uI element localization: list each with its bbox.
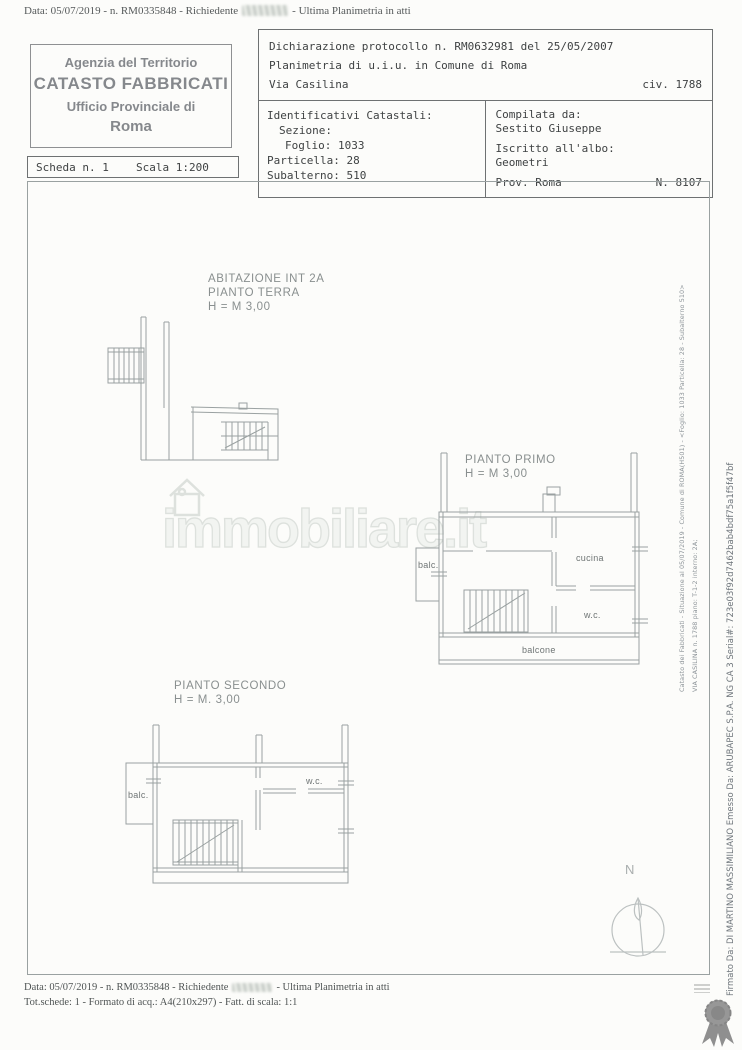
secondo-room-wc: w.c. <box>306 776 323 786</box>
agency-name: Agenzia del Territorio <box>31 55 231 70</box>
plan-canvas: immobiliare.it <box>27 181 710 975</box>
corner-scan-marks <box>694 984 710 993</box>
declaration-table: Dichiarazione protocollo n. RM0632981 de… <box>258 29 713 198</box>
albo-label: Iscritto all'albo: <box>496 142 703 156</box>
civic-number: civ. 1788 <box>642 75 702 94</box>
sezione-line: Sezione: <box>267 123 477 138</box>
scan-header-suffix: - Ultima Planimetria in atti <box>292 5 411 17</box>
floorplans-drawing <box>28 182 709 974</box>
identifiers-title: Identificativi Catastali: <box>267 108 477 123</box>
foglio-line: Foglio: 1033 <box>267 138 477 153</box>
office-line: Ufficio Provinciale di <box>31 99 231 114</box>
declaration-section: Dichiarazione protocollo n. RM0632981 de… <box>259 30 712 100</box>
particella-line: Particella: 28 <box>267 153 477 168</box>
albo-value: Geometri <box>496 156 703 170</box>
terra-height: H = M 3,00 <box>208 300 325 314</box>
side-signature-text: Firmato Da: DI MARTINO MASSIMILIANO Emes… <box>726 404 736 996</box>
compiler-name: Sestito Giuseppe <box>496 122 703 136</box>
protocol-line: Dichiarazione protocollo n. RM0632981 de… <box>269 37 702 56</box>
terra-title-block: ABITAZIONE INT 2A PIANTO TERRA H = M 3,0… <box>208 272 325 314</box>
footer-redacted-stamp <box>232 983 272 992</box>
street-name: Via Casilina <box>269 75 348 94</box>
redacted-requester-stamp <box>242 5 288 16</box>
scheda-number: Scheda n. 1 <box>28 161 136 174</box>
plan-secondo-geometry <box>126 725 354 883</box>
office-city: Roma <box>31 118 231 135</box>
agency-header-box: Agenzia del Territorio CATASTO FABBRICAT… <box>30 44 232 148</box>
certification-ribbon-icon <box>698 998 738 1048</box>
north-label: N <box>625 862 634 877</box>
secondo-title-block: PIANTO SECONDO H = M. 3,00 <box>174 679 286 707</box>
scheda-box: Scheda n. 1 Scala 1:200 <box>27 156 239 178</box>
north-compass: N <box>598 862 678 977</box>
primo-title-block: PIANTO PRIMO H = M 3,00 <box>465 453 556 481</box>
planimetria-line: Planimetria di u.i.u. in Comune di Roma <box>269 56 702 75</box>
footer-line1: Data: 05/07/2019 - n. RM0335848 - Richie… <box>24 982 390 993</box>
primo-height: H = M 3,00 <box>465 467 556 481</box>
secondo-room-balc: balc. <box>128 790 149 800</box>
primo-room-cucina: cucina <box>576 553 604 563</box>
compass-icon <box>598 862 678 977</box>
compiler-label: Compilata da: <box>496 108 703 122</box>
cadastral-floorplan-document: { "document": { "top_line": { "prefix": … <box>0 0 742 1050</box>
footer-line1-prefix: Data: 05/07/2019 - n. RM0335848 - Richie… <box>24 982 228 993</box>
terra-title-line2: PIANTO TERRA <box>208 286 325 300</box>
footer-line1-suffix: - Ultima Planimetria in atti <box>276 982 389 993</box>
terra-title-line1: ABITAZIONE INT 2A <box>208 272 325 286</box>
primo-room-wc: w.c. <box>584 610 601 620</box>
plan-terra-geometry <box>108 317 278 460</box>
scala-value: Scala 1:200 <box>136 161 209 174</box>
secondo-title-line1: PIANTO SECONDO <box>174 679 286 693</box>
primo-room-balc: balc. <box>418 560 439 570</box>
footer-line2: Tot.schede: 1 - Formato di acq.: A4(210x… <box>24 997 297 1008</box>
scan-header-prefix: Data: 05/07/2019 - n. RM0335848 - Richie… <box>24 5 238 17</box>
secondo-height: H = M. 3,00 <box>174 693 286 707</box>
plan-primo-geometry <box>416 453 648 664</box>
scan-header-line: Data: 05/07/2019 - n. RM0335848 - Richie… <box>24 5 724 17</box>
primo-title-line1: PIANTO PRIMO <box>465 453 556 467</box>
catasto-title: CATASTO FABBRICATI <box>31 74 231 94</box>
primo-room-balcone: balcone <box>522 645 556 655</box>
